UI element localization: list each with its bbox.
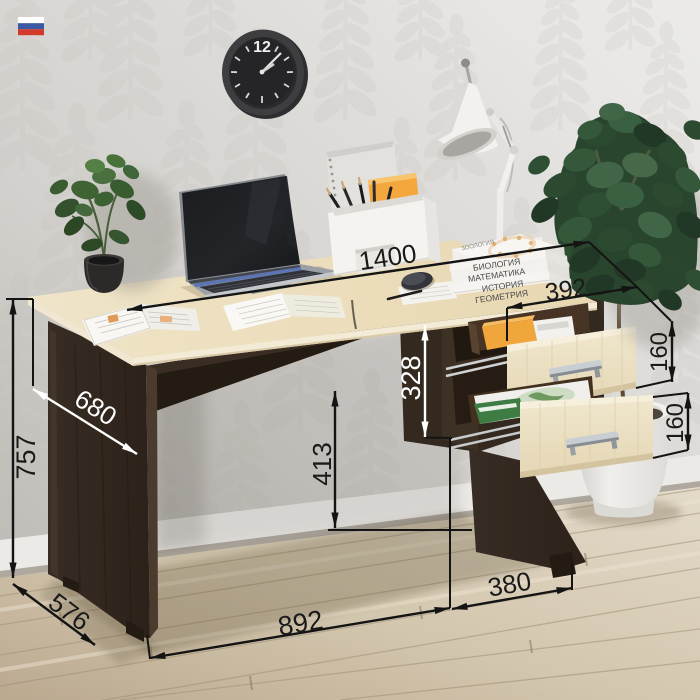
svg-text:757: 757 (11, 434, 41, 479)
svg-text:12: 12 (253, 39, 271, 56)
svg-text:160: 160 (646, 332, 673, 372)
svg-text:328: 328 (396, 355, 426, 400)
svg-text:160: 160 (662, 403, 689, 443)
svg-text:413: 413 (307, 442, 337, 485)
